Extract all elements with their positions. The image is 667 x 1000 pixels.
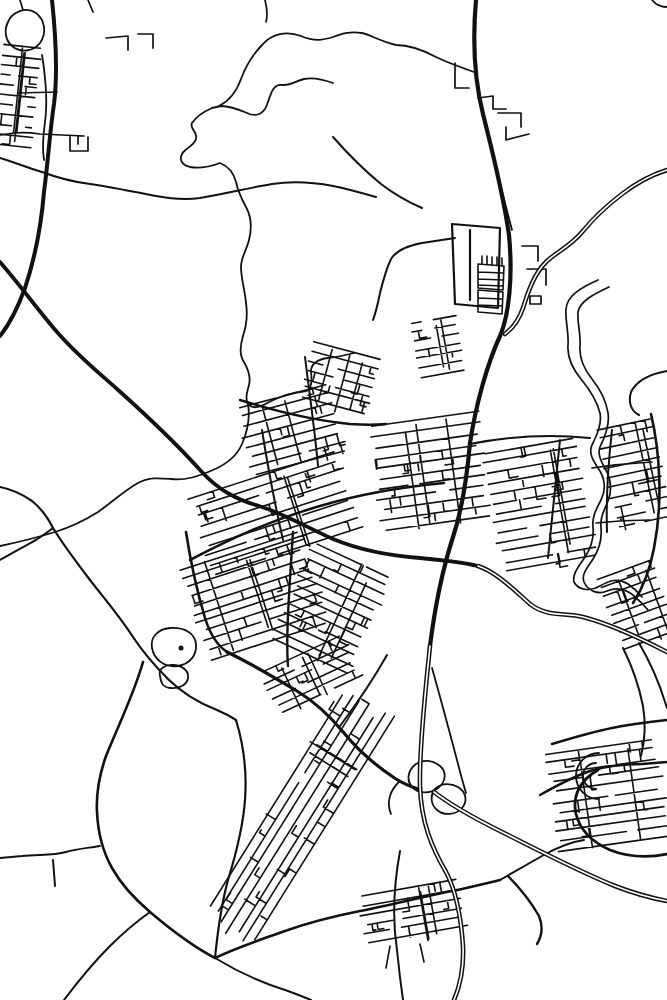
feature-top-right-corner-road [652, 0, 667, 7]
urban-cluster-se-upper [597, 560, 667, 653]
road-se-descent-b [639, 643, 667, 708]
feature-pond-with-island [152, 628, 196, 666]
city-map-poster [0, 0, 667, 1000]
road-wedge-ne-boundary [215, 720, 246, 958]
road-corner-road-sw [64, 912, 150, 1000]
cluster-streets-east-bank [481, 437, 600, 577]
pond-island-dot [179, 646, 184, 651]
cluster-streets-core-north [411, 316, 466, 378]
road-rural-west-junction [0, 846, 100, 886]
cluster-streets-se-suburb [545, 739, 667, 853]
water-boundary-north-b [219, 32, 474, 106]
motorway-motorway-ne-approach [505, 170, 667, 334]
feature-village-south-stubs [386, 944, 424, 968]
feature-interchange-ramp [389, 781, 400, 814]
feature-bridge-street-a [592, 462, 652, 468]
urban-cluster-east-bank [481, 437, 600, 577]
feature-industrial-outline [452, 224, 500, 308]
motorway-core-motorway-ne-approach [505, 170, 667, 334]
feature-far-east-hook [630, 371, 667, 415]
cluster-streets-se-upper [597, 560, 667, 653]
map-svg [0, 0, 667, 1000]
water-stream-nw-edge [0, 404, 249, 546]
cluster-streets-wedge-a [179, 530, 332, 663]
feature-village-spur [18, 92, 57, 93]
road-village-road-south [394, 851, 403, 1000]
motorway-core-motorway-se-branch [434, 792, 667, 901]
road-rural-wavy-west [0, 158, 376, 199]
road-se-descent-a [623, 648, 645, 756]
road-industrial-west-road [373, 238, 455, 320]
road-rural-diag-north [333, 137, 422, 208]
feature-bridge-street-b [596, 520, 650, 523]
road-r1-parallel-lane [42, 55, 46, 160]
water-boundary-north-a [181, 78, 354, 407]
urban-cluster-core-north [411, 316, 466, 378]
cluster-streets-core-m1 [366, 411, 493, 534]
road-m1-branch-se [432, 668, 466, 793]
road-strip-ne-edge [340, 655, 387, 726]
road-east-top-street [470, 436, 590, 444]
feature-top-edge-stubs [20, 0, 267, 22]
road-south-edge-road [227, 652, 418, 789]
road-c-curve-road [508, 876, 541, 944]
urban-cluster-wedge-a [179, 530, 332, 663]
feature-nw-hook-streets [106, 34, 153, 50]
road-wedge-tip-branch [215, 958, 311, 1000]
urban-cluster-se-suburb [545, 739, 667, 853]
motorway-motorway-se-branch [434, 792, 667, 901]
road-provincial-diagonal [0, 262, 478, 566]
horseshoe-center-dot [588, 774, 591, 777]
road-sw-sweeping-curve [97, 662, 500, 958]
road-junction-ne-road [500, 840, 584, 880]
water-river-bank-east [578, 287, 648, 610]
feature-village-loop-road [6, 10, 45, 51]
urban-cluster-core-m1 [366, 411, 493, 534]
